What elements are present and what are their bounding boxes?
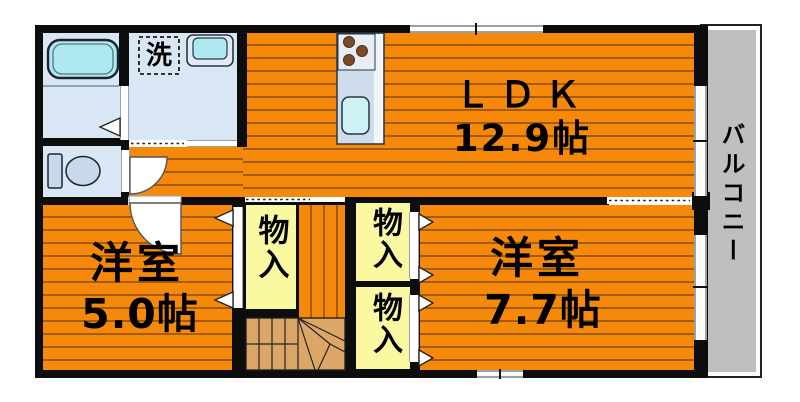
toilet-door-leaf [121, 150, 130, 192]
window-top [410, 25, 543, 33]
closet-right-upper-door [409, 212, 419, 279]
bathroom-floor [43, 33, 127, 145]
bedroom-right-area-label: 7.7帖 [484, 290, 602, 331]
closet-left-door [233, 207, 243, 308]
bedroom-right-label: 洋室 [490, 238, 584, 281]
hallway-floor [127, 147, 243, 197]
opening-ldk-bedroom [607, 197, 692, 204]
balcony-label: バルコニー [719, 122, 743, 267]
bedroom-left-label: 洋室 [90, 243, 184, 286]
washing-machine-label: 洗 [146, 43, 172, 69]
bathroom-door [120, 86, 129, 140]
closet-right-lower-label: 物入 [369, 292, 399, 356]
closet-right-lower-door [409, 295, 419, 362]
wall-washroom-kitchen [237, 25, 247, 147]
ldk-area-label: 12.9帖 [453, 120, 591, 157]
washroom-sliding-door [187, 140, 237, 147]
washroom-entry-opening [129, 140, 187, 147]
wall-middle-left [35, 197, 128, 205]
closet-right-upper-label: 物入 [369, 207, 399, 271]
opening-above-stairs [245, 197, 345, 202]
stairs-upper-flight [299, 205, 345, 318]
bedroom-left-area-label: 5.0帖 [81, 294, 199, 335]
wall-top [35, 25, 708, 33]
ldk-label: ＬＤＫ [454, 78, 589, 114]
stairs [246, 318, 345, 370]
wall-bath-toilet [35, 138, 129, 146]
toilet-room-floor [43, 145, 121, 197]
floor-plan: ＬＤＫ 12.9帖 洋室 5.0帖 洋室 7.7帖 物入 物入 物入 バルコニー… [0, 0, 800, 402]
closet-left-label: 物入 [255, 214, 286, 282]
window-bottom [477, 370, 523, 378]
window-balcony-lower [694, 235, 707, 340]
window-balcony-upper [694, 86, 707, 196]
wall-bath-washroom [119, 33, 129, 86]
